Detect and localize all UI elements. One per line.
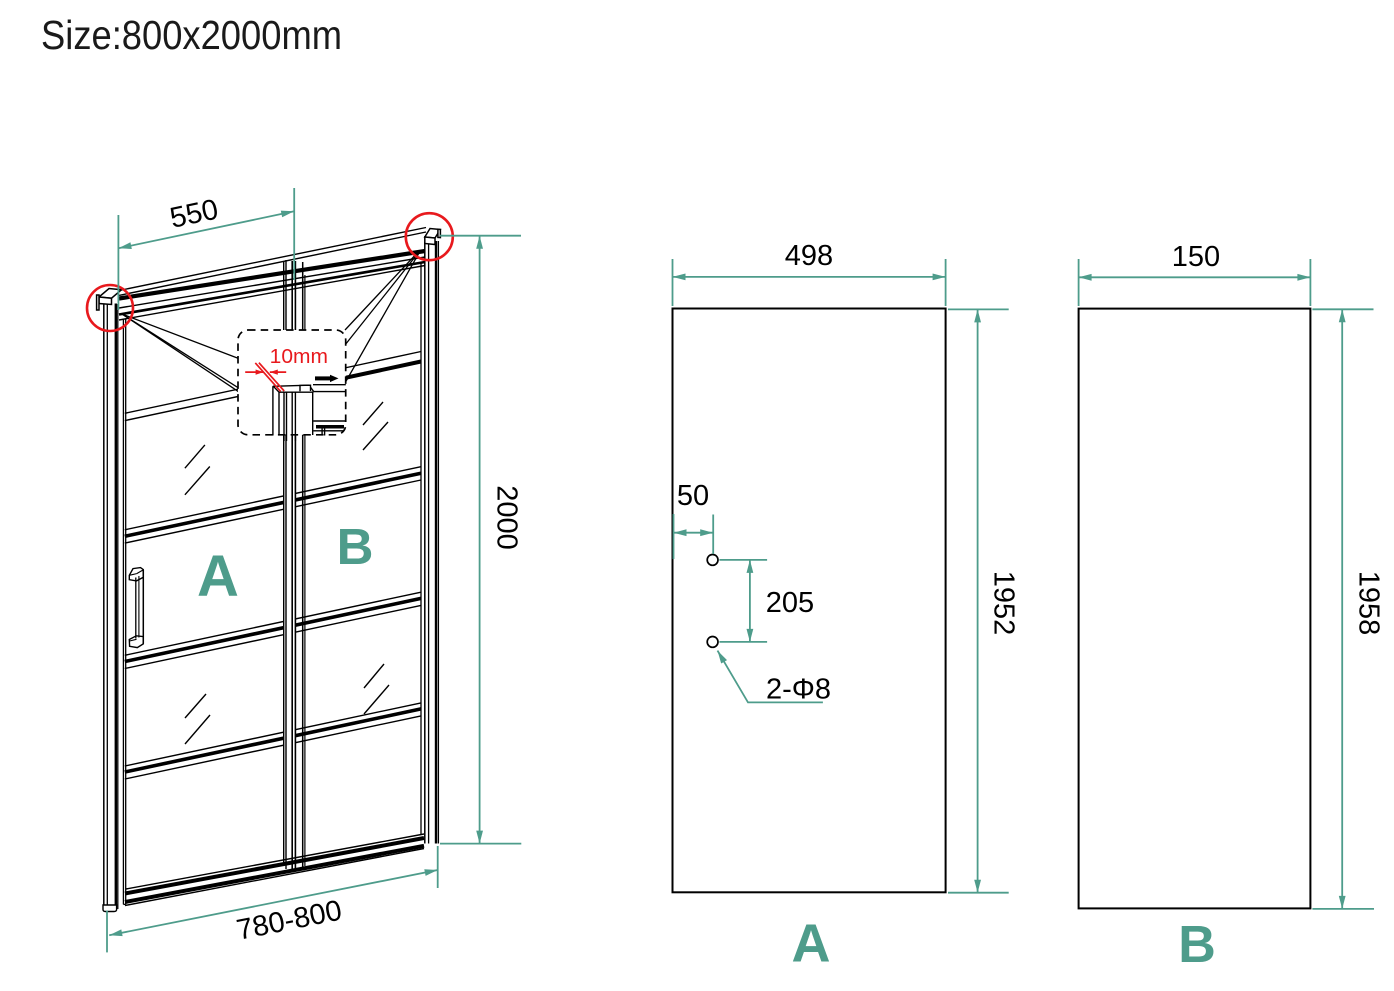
svg-text:Size:800x2000mm: Size:800x2000mm: [41, 12, 342, 58]
svg-text:50: 50: [677, 480, 709, 512]
svg-text:205: 205: [766, 587, 814, 619]
svg-text:2000: 2000: [490, 485, 522, 550]
svg-text:A: A: [792, 914, 831, 974]
svg-text:2-Φ8: 2-Φ8: [766, 674, 831, 706]
svg-text:A: A: [197, 544, 239, 609]
svg-text:B: B: [1178, 916, 1216, 974]
svg-text:B: B: [337, 518, 374, 575]
svg-text:10mm: 10mm: [270, 345, 328, 368]
svg-text:1952: 1952: [988, 571, 1020, 636]
svg-text:498: 498: [785, 240, 833, 272]
svg-text:150: 150: [1172, 241, 1220, 273]
svg-text:1958: 1958: [1352, 571, 1384, 636]
